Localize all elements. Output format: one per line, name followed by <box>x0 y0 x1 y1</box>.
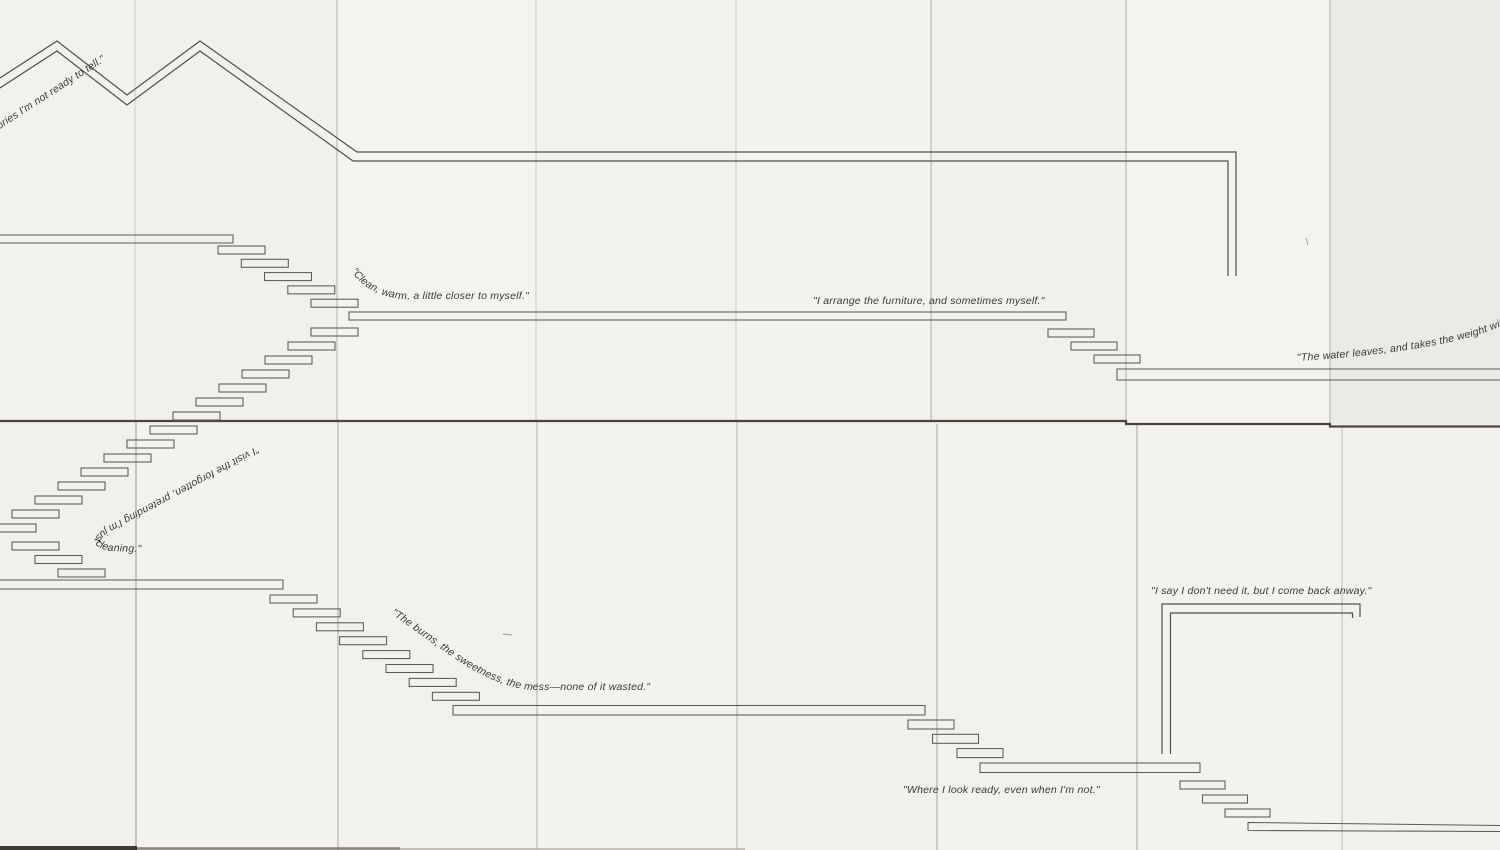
paper-panel <box>0 0 135 422</box>
paper-panel <box>736 0 931 422</box>
paper-panel <box>337 0 536 422</box>
scanned-collage-page: stories I'm not ready to tell." "Clean, … <box>0 0 1500 850</box>
paper-panel <box>1342 427 1500 850</box>
paper-panel <box>135 0 337 422</box>
paper-panel <box>537 421 737 850</box>
collage-artwork: stories I'm not ready to tell." "Clean, … <box>0 0 1500 850</box>
quote-arrange: "I arrange the furniture, and sometimes … <box>813 295 1046 307</box>
paper-panel-dark <box>1330 0 1500 427</box>
quote-ready: "Where I look ready, even when I'm not." <box>903 784 1101 796</box>
paper-panel <box>136 421 338 850</box>
paper-panel <box>338 421 537 850</box>
paper-panel <box>1137 424 1342 850</box>
paper-panel <box>536 0 736 422</box>
quote-comeback: "I say I don't need it, but I come back … <box>1151 585 1372 597</box>
paper-panel <box>0 421 136 850</box>
paper-panel <box>931 0 1126 424</box>
